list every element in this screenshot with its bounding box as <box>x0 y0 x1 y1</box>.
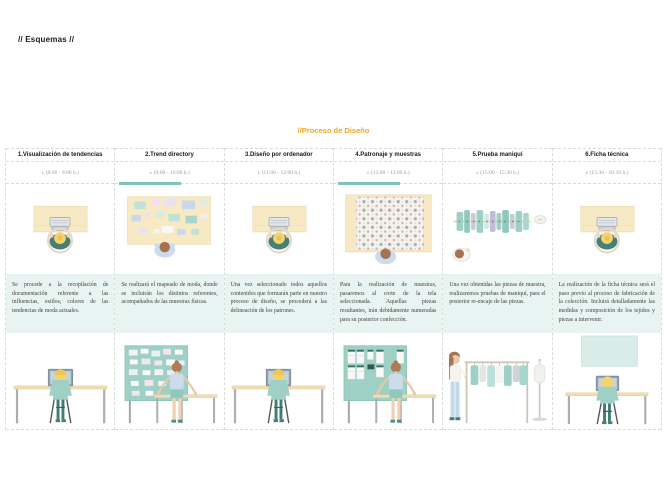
desk-computer-topview-illustration <box>8 191 112 269</box>
step-title: 5.Prueba maniquí <box>443 148 551 162</box>
step-top-illustration-cell <box>553 184 661 274</box>
step-bottom-illustration-cell <box>115 333 223 430</box>
step-time: ± (12:00 - 13:00 h.) <box>334 162 442 184</box>
step-bottom-illustration-cell <box>443 333 551 430</box>
step-top-illustration-cell <box>334 184 442 274</box>
step-time: ± (9:00 - 10:00 h.) <box>115 162 223 184</box>
step-time-text: ± (9:00 - 10:00 h.) <box>149 170 189 176</box>
process-table: 1.Visualización de tendencias ± (8:00 - … <box>5 148 662 430</box>
person-seated-at-desk-illustration <box>225 335 332 429</box>
step-top-illustration-cell <box>443 184 551 274</box>
step-title: 1.Visualización de tendencias <box>6 148 114 162</box>
step-title: 2.Trend directory <box>115 148 223 162</box>
garment-rack-topview-illustration <box>445 191 549 269</box>
step-description: Para la realización de muestras, pasarem… <box>334 274 442 333</box>
person-standing-moodboard-table-illustration <box>116 335 223 429</box>
process-step-column-4: 4.Patronaje y muestras ± (12:00 - 13:00 … <box>334 148 443 430</box>
person-seated-at-desk-with-board-illustration <box>553 335 660 429</box>
page-title: // Esquemas // <box>18 35 74 44</box>
step-time: ± (15:00 - 15:30 h.) <box>443 162 551 184</box>
desk-computer-topview-illustration <box>555 191 659 269</box>
step-title: 3.Diseño por ordenador <box>225 148 333 162</box>
step-top-illustration-cell <box>115 184 223 274</box>
step-bottom-illustration-cell <box>225 333 333 430</box>
moodboard-table-topview-illustration <box>117 191 221 269</box>
step-bottom-illustration-cell <box>6 333 114 430</box>
step-top-illustration-cell <box>6 184 114 274</box>
step-time: ± (8:00 - 9:00 h.) <box>6 162 114 184</box>
step-title: 6.Ficha técnica <box>553 148 661 162</box>
desk-computer-topview-illustration <box>227 191 331 269</box>
step-description: Una vez seleccionado todos aquellos cont… <box>225 274 333 333</box>
person-standing-pattern-board-table-illustration <box>335 335 442 429</box>
process-section-title: //Proceso de Diseño <box>0 126 667 135</box>
step-description: Se procede a la recopilación de document… <box>6 274 114 333</box>
process-step-column-6: 6.Ficha técnica ± (15:30 - 16:30 h.) La … <box>553 148 662 430</box>
process-step-column-3: 3.Diseño por ordenador ± (11:00 - 12:00 … <box>225 148 334 430</box>
step-bottom-illustration-cell <box>334 333 442 430</box>
step-time: ± (11:00 - 12:00 h.) <box>225 162 333 184</box>
step-top-illustration-cell <box>225 184 333 274</box>
step-description: Una vez obtenidas las piezas de muestra,… <box>443 274 551 333</box>
process-step-column-1: 1.Visualización de tendencias ± (8:00 - … <box>5 148 115 430</box>
process-step-column-2: 2.Trend directory ± (9:00 - 10:00 h.) Se… <box>115 148 224 430</box>
step-description: Se realizará el mapeado de moda, donde s… <box>115 274 223 333</box>
step-title: 4.Patronaje y muestras <box>334 148 442 162</box>
fabric-cutting-table-topview-illustration <box>336 191 440 269</box>
step-time: ± (15:30 - 16:30 h.) <box>553 162 661 184</box>
process-step-column-5: 5.Prueba maniquí ± (15:00 - 15:30 h.) Un… <box>443 148 552 430</box>
step-description: La realización de la ficha técnica será … <box>553 274 661 333</box>
person-garment-rack-mannequin-illustration <box>444 335 551 429</box>
step-time-text: ± (12:00 - 13:00 h.) <box>367 170 410 176</box>
step-bottom-illustration-cell <box>553 333 661 430</box>
person-seated-at-desk-illustration <box>7 335 114 429</box>
